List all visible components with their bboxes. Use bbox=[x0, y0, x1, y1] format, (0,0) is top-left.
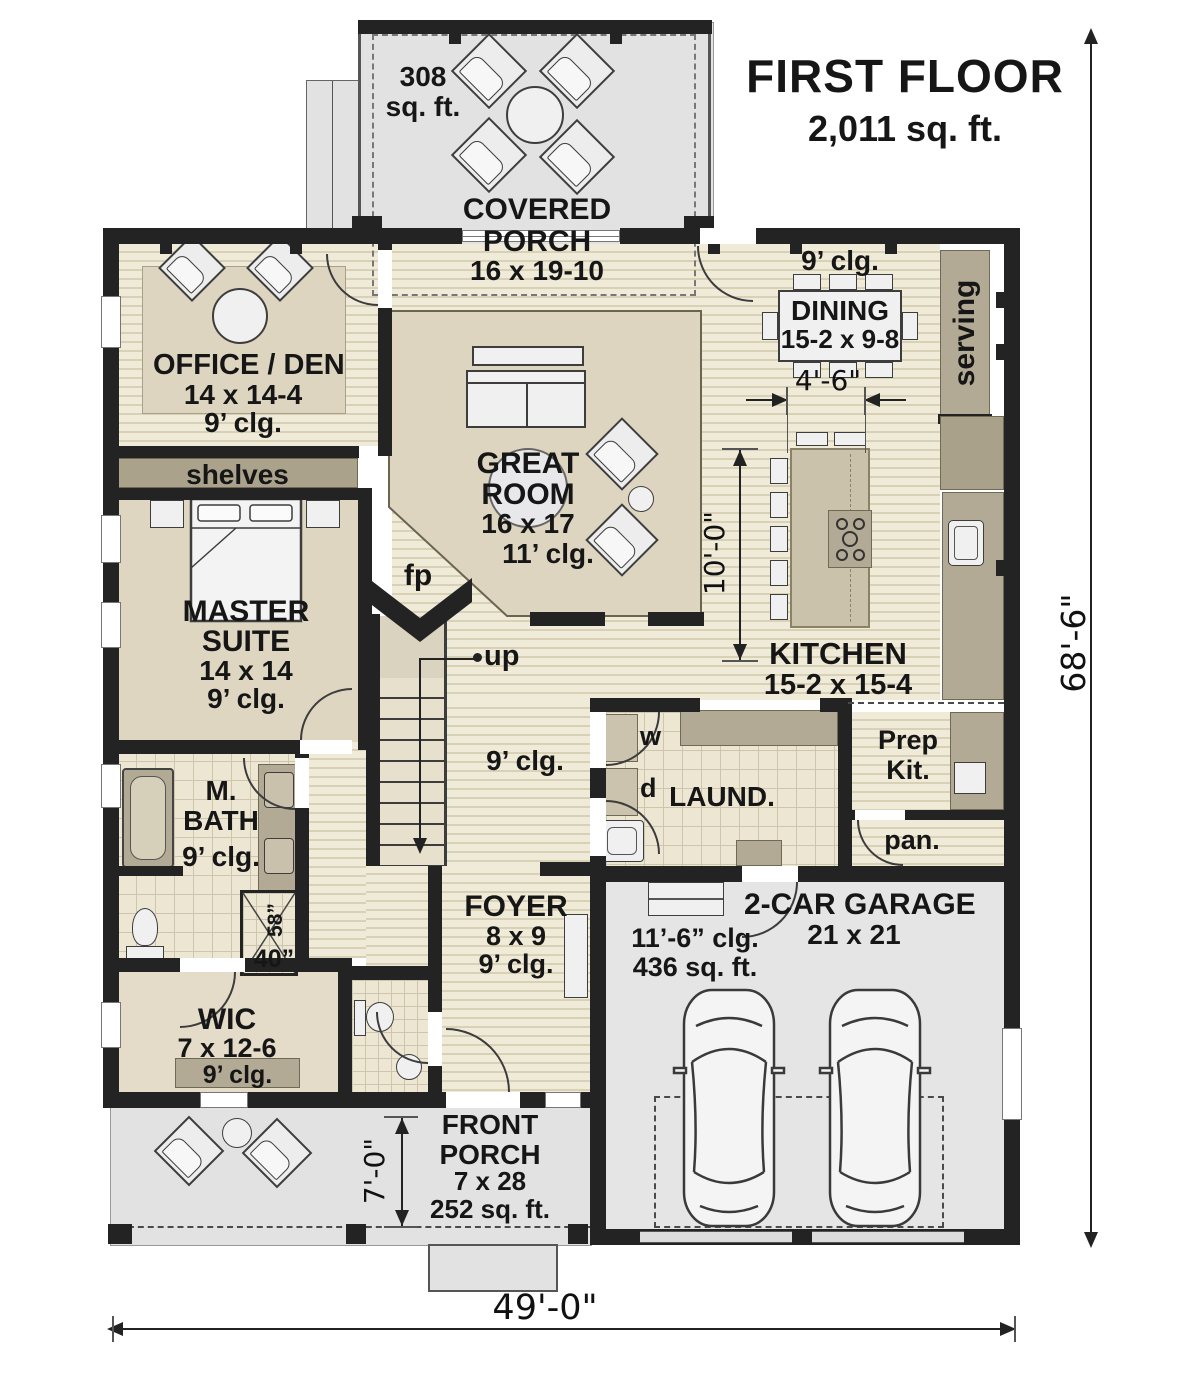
porch-steps bbox=[306, 80, 360, 236]
wall-nub bbox=[996, 292, 1006, 308]
great-room-name1: GREAT bbox=[468, 448, 588, 480]
dim-arrow bbox=[733, 644, 747, 660]
covered-porch-name2: PORCH bbox=[457, 226, 617, 258]
wall-right-main bbox=[1004, 228, 1020, 888]
prep-appliance bbox=[954, 762, 986, 794]
bath-sink bbox=[264, 838, 294, 874]
front-window bbox=[545, 1092, 581, 1108]
garage-area: 436 sq. ft. bbox=[620, 953, 770, 981]
dryer-label: d bbox=[640, 774, 666, 802]
covered-porch-dims: 16 x 19-10 bbox=[457, 256, 617, 285]
office-door-gap bbox=[378, 250, 392, 308]
island-stool bbox=[770, 458, 788, 484]
master-door-gap bbox=[300, 740, 352, 754]
office-dims: 14 x 14-4 bbox=[153, 380, 333, 409]
washer-label: w bbox=[640, 722, 666, 750]
dining-chair bbox=[902, 312, 918, 340]
great-room-dims: 16 x 17 bbox=[468, 509, 588, 538]
dim-porch-label: 7'-0" bbox=[359, 1127, 389, 1215]
master-clg: 9’ clg. bbox=[166, 684, 326, 713]
covered-porch-area-unit: sq. ft. bbox=[383, 92, 463, 121]
office-name: OFFICE / DEN bbox=[153, 350, 333, 380]
laundry-name: LAUND. bbox=[660, 782, 784, 811]
garage-shelf bbox=[648, 882, 724, 916]
wall-greatroom-bottom-a bbox=[530, 612, 605, 626]
hall-floor bbox=[446, 700, 590, 866]
laundry-counter bbox=[680, 710, 838, 746]
dim-ext bbox=[787, 415, 788, 453]
wall-pan-divider-b bbox=[905, 810, 1006, 820]
up-arrow-hline bbox=[419, 658, 475, 660]
stair-railing bbox=[444, 614, 447, 866]
island-stool bbox=[770, 492, 788, 518]
dim-ext bbox=[865, 415, 866, 453]
dim-arrow bbox=[733, 450, 747, 466]
dining-name: DINING bbox=[780, 296, 900, 325]
prep-counter bbox=[950, 712, 1004, 810]
kitchen-name: KITCHEN bbox=[738, 638, 938, 671]
fireplace-label: fp bbox=[395, 560, 441, 592]
dim-tick bbox=[112, 1316, 114, 1342]
dining-chair bbox=[829, 274, 857, 290]
wall-laundry-left-a bbox=[590, 698, 606, 712]
garage-door-opening bbox=[812, 1231, 964, 1243]
wall-wic-right bbox=[338, 966, 352, 1092]
wall-powder-top bbox=[352, 966, 428, 980]
pan-door-gap bbox=[855, 810, 905, 820]
wic-door-gap bbox=[180, 958, 245, 972]
dining-dims: 15-2 x 9-8 bbox=[780, 326, 900, 353]
wall-laundry-left-c bbox=[590, 856, 606, 868]
wic-name: WIC bbox=[152, 1004, 302, 1036]
porch-table bbox=[506, 86, 564, 144]
front-porch-name2: PORCH bbox=[410, 1140, 570, 1169]
window bbox=[101, 1002, 121, 1048]
sofa bbox=[466, 370, 586, 428]
wall-left bbox=[103, 228, 119, 1108]
front-door-gap bbox=[446, 1092, 520, 1108]
dining-clg: 9’ clg. bbox=[790, 246, 890, 275]
kitchen-dims: 15-2 x 15-4 bbox=[738, 670, 938, 700]
shower-depth: 40” bbox=[242, 946, 306, 972]
front-porch-name1: FRONT bbox=[410, 1110, 570, 1139]
wic-clg: 9’ clg. bbox=[175, 1062, 300, 1088]
wall-greatroom-top-l bbox=[392, 228, 462, 244]
serving-label: serving bbox=[950, 280, 980, 386]
mbath-name2: BATH bbox=[181, 806, 261, 835]
front-porch-table bbox=[222, 1118, 252, 1148]
wall-nub bbox=[160, 244, 172, 254]
wic-dims: 7 x 12-6 bbox=[142, 1034, 312, 1062]
kitchen-sink bbox=[948, 520, 984, 566]
porch-post bbox=[568, 1224, 588, 1244]
front-window bbox=[200, 1092, 248, 1108]
dining-chair bbox=[865, 274, 893, 290]
wall-nub bbox=[290, 244, 302, 254]
island-stool bbox=[770, 526, 788, 552]
garage-entry-gap bbox=[742, 866, 798, 882]
bath-door-gap bbox=[295, 758, 309, 808]
wall-laundry-right bbox=[838, 698, 852, 866]
porch-edge-left bbox=[358, 34, 361, 224]
wall-toilet-nook bbox=[103, 866, 183, 876]
cooktop-burners-icon bbox=[832, 514, 868, 564]
garage-name: 2-CAR GARAGE bbox=[744, 889, 964, 921]
great-room-clg: 11’ clg. bbox=[488, 539, 608, 568]
window bbox=[101, 515, 121, 563]
hall-clg: 9’ clg. bbox=[455, 746, 595, 775]
porch-post-left bbox=[352, 216, 382, 242]
front-porch-dims: 7 x 28 bbox=[410, 1168, 570, 1195]
garage-clg: 11’-6” clg. bbox=[620, 924, 770, 952]
up-arrowhead bbox=[413, 838, 427, 854]
wall-shelves-top bbox=[103, 446, 359, 458]
wall-greatroom-bottom-b bbox=[648, 612, 704, 626]
prep-line1: Prep bbox=[858, 726, 958, 754]
stairs-up-label: up bbox=[484, 641, 530, 671]
wall-porch-top bbox=[358, 20, 712, 34]
wall-foyer-left-b bbox=[428, 1066, 442, 1092]
wall-garage-top bbox=[590, 866, 1020, 882]
laundry-door-gap-2 bbox=[590, 798, 606, 856]
window bbox=[101, 296, 121, 348]
page-title: FIRST FLOOR bbox=[745, 52, 1065, 100]
office-table bbox=[212, 288, 268, 344]
shower-width: 58” bbox=[264, 890, 288, 950]
dim-width-label: 49'-0" bbox=[455, 1288, 635, 1328]
dim-height-label: 68'-6" bbox=[1054, 598, 1092, 688]
shelves-label: shelves bbox=[117, 460, 358, 489]
dim-tick bbox=[864, 387, 866, 415]
hall-strip-floor bbox=[309, 742, 366, 958]
island-stool bbox=[770, 594, 788, 620]
dim-tick bbox=[786, 387, 788, 415]
dining-chair bbox=[762, 312, 778, 340]
master-name1: MASTER bbox=[166, 596, 326, 628]
dim-arrow bbox=[395, 1210, 409, 1226]
console-table bbox=[472, 346, 584, 366]
island-stool bbox=[770, 560, 788, 586]
wall-bath-bottom-l bbox=[103, 958, 180, 972]
front-porch-area: 252 sq. ft. bbox=[410, 1196, 570, 1223]
foyer-name: FOYER bbox=[436, 891, 596, 923]
car bbox=[676, 984, 782, 1232]
garage-window bbox=[1002, 1028, 1022, 1120]
dim-arrow bbox=[395, 1118, 409, 1134]
master-name2: SUITE bbox=[166, 626, 326, 658]
wall-nub bbox=[449, 34, 461, 44]
bathtub bbox=[122, 768, 174, 868]
office-clg: 9’ clg. bbox=[153, 408, 333, 437]
laundry-counter-2 bbox=[736, 840, 782, 866]
porch-edge-right bbox=[708, 34, 711, 224]
covered-porch-name1: COVERED bbox=[457, 194, 617, 226]
mbath-name1: M. bbox=[190, 776, 252, 805]
island-stool bbox=[796, 432, 828, 446]
porch-post bbox=[346, 1224, 366, 1244]
mbath-clg: 9’ clg. bbox=[181, 842, 261, 871]
foyer-clg: 9’ clg. bbox=[436, 950, 596, 978]
side-table bbox=[628, 486, 654, 512]
dim-island-label: 10'-0" bbox=[699, 507, 729, 599]
wall-master-bottom bbox=[103, 740, 300, 754]
dining-chair bbox=[793, 274, 821, 290]
up-arrow-vline bbox=[419, 658, 421, 842]
foyer-dims: 8 x 9 bbox=[436, 922, 596, 950]
toilet bbox=[132, 908, 158, 946]
nightstand bbox=[150, 500, 184, 528]
dim-tick bbox=[722, 660, 758, 662]
dim-tick bbox=[384, 1226, 418, 1228]
great-room-name2: ROOM bbox=[468, 479, 588, 511]
covered-porch-area-num: 308 bbox=[393, 62, 453, 91]
garage-dims: 21 x 21 bbox=[744, 920, 964, 949]
floor-plan: FIRST FLOOR 2,011 sq. ft. bbox=[0, 0, 1200, 1382]
front-steps bbox=[428, 1244, 558, 1292]
dim-line-island bbox=[739, 450, 741, 660]
dim-dining-label: 4'-6" bbox=[778, 364, 878, 397]
dim-arrow bbox=[1084, 1232, 1098, 1248]
dim-arrow bbox=[107, 1322, 123, 1336]
page-subtitle: 2,011 sq. ft. bbox=[745, 110, 1065, 148]
porch-post bbox=[108, 1224, 132, 1244]
wall-front bbox=[103, 1092, 606, 1108]
dim-tick bbox=[1014, 1316, 1016, 1342]
prep-open-dashed bbox=[848, 702, 1004, 704]
powder-toilet-tank bbox=[354, 1000, 366, 1036]
island-stool bbox=[834, 432, 866, 446]
wall-nub bbox=[996, 560, 1006, 576]
prep-line2: Kit. bbox=[858, 756, 958, 784]
dim-arrow bbox=[864, 393, 880, 407]
powder-door-gap bbox=[428, 1012, 442, 1066]
wall-nub bbox=[708, 244, 720, 254]
refrigerator-cabinet bbox=[940, 416, 1004, 490]
car bbox=[822, 984, 928, 1232]
wall-pan-divider-a bbox=[846, 810, 855, 820]
wall-foyer-top-r bbox=[540, 862, 590, 876]
window bbox=[101, 602, 121, 648]
dining-door-gap bbox=[700, 228, 756, 244]
wall-greatroom-top-r bbox=[620, 228, 690, 244]
wall-kitchen-laundry-a bbox=[590, 698, 700, 712]
window bbox=[101, 764, 121, 808]
wall-nub bbox=[996, 344, 1006, 360]
dim-line-width bbox=[113, 1328, 1016, 1330]
stair-treads bbox=[380, 678, 444, 866]
wall-nub bbox=[610, 34, 622, 44]
dim-arrow bbox=[1084, 28, 1098, 44]
wall-stairs-left bbox=[366, 614, 380, 866]
garage-door-opening bbox=[640, 1231, 792, 1243]
nightstand bbox=[306, 500, 340, 528]
master-dims: 14 x 14 bbox=[166, 656, 326, 685]
pantry-label: pan. bbox=[862, 826, 962, 854]
